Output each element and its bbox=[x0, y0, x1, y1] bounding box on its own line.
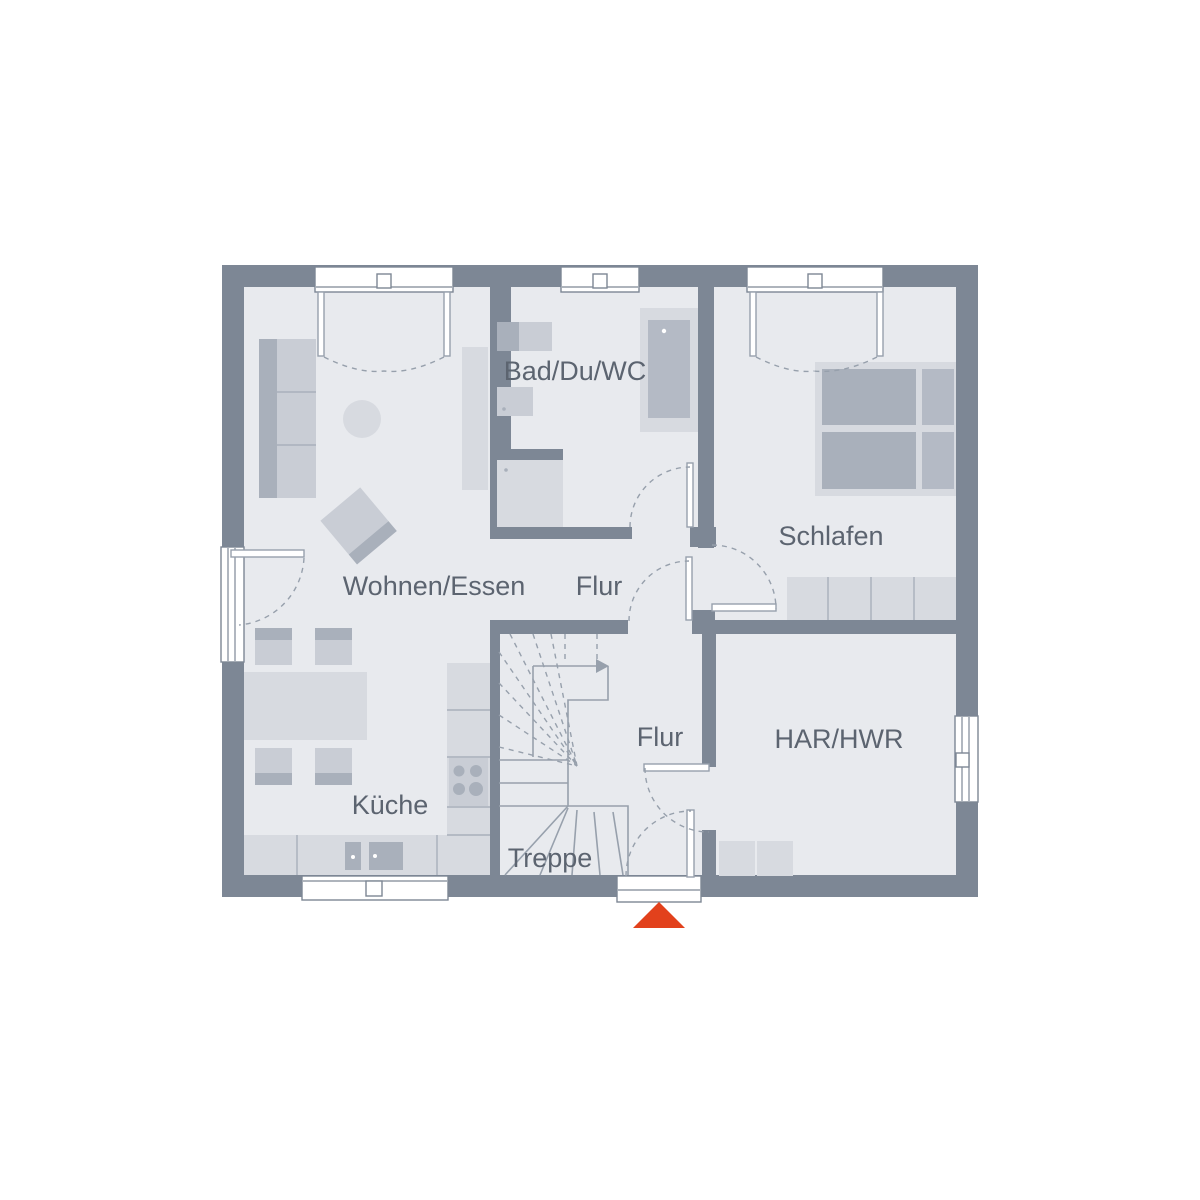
chair-backrest bbox=[315, 773, 352, 785]
bath-door-leaf bbox=[687, 463, 693, 527]
window-post bbox=[377, 274, 391, 288]
floor-plan: Wohnen/Essen Flur Bad/Du/WC Schlafen Küc… bbox=[0, 0, 1200, 1200]
wall-flur-door-stub bbox=[692, 610, 715, 634]
dryer bbox=[757, 841, 793, 876]
coffee-table bbox=[343, 400, 381, 438]
room-label-kueche: Küche bbox=[352, 790, 429, 820]
entrance-door-sill bbox=[617, 876, 701, 902]
burner-icon bbox=[469, 782, 483, 796]
room-label-har: HAR/HWR bbox=[775, 724, 904, 754]
chair-backrest bbox=[255, 628, 292, 640]
entrance-door-leaf bbox=[687, 810, 694, 877]
room-label-bad: Bad/Du/WC bbox=[504, 356, 647, 386]
bedroom-door-leaf bbox=[712, 604, 776, 611]
washer bbox=[719, 841, 755, 876]
wall-treppe-left bbox=[490, 632, 500, 875]
wall-har-left-lower bbox=[702, 830, 716, 875]
window-post bbox=[366, 881, 382, 896]
utility-door-leaf bbox=[644, 764, 709, 771]
appliance-knob-icon bbox=[373, 854, 377, 858]
room-label-schlafen: Schlafen bbox=[778, 521, 883, 551]
door-leaf-bedroom-right bbox=[877, 292, 883, 356]
door-leaf-bedroom-left bbox=[750, 292, 756, 356]
window-post bbox=[593, 274, 607, 288]
window-post bbox=[956, 753, 969, 767]
sofa-backrest bbox=[259, 339, 277, 498]
burner-icon bbox=[454, 766, 465, 777]
appliance-knob-icon bbox=[351, 855, 355, 859]
dining-table bbox=[244, 672, 367, 740]
sideboard bbox=[462, 347, 488, 490]
dining-chair bbox=[255, 640, 292, 665]
entrance-marker-icon bbox=[633, 902, 685, 928]
room-label-flur-oben: Flur bbox=[576, 571, 623, 601]
room-label-flur-unten: Flur bbox=[637, 722, 684, 752]
wall-har-left-upper bbox=[702, 634, 716, 767]
wall-schlafen-left bbox=[698, 287, 714, 548]
door-leaf-terrace bbox=[231, 550, 304, 557]
nightstand bbox=[922, 369, 954, 425]
nightstand bbox=[922, 432, 954, 489]
wall-treppe-top bbox=[490, 620, 628, 634]
cooktop bbox=[449, 758, 488, 806]
room-label-treppe: Treppe bbox=[508, 843, 593, 873]
bathtub-basin bbox=[648, 320, 690, 418]
dining-chair bbox=[315, 640, 352, 665]
door-leaf-living-right bbox=[444, 292, 450, 356]
burner-icon bbox=[470, 765, 482, 777]
dining-chair bbox=[315, 748, 352, 773]
burner-icon bbox=[453, 783, 465, 795]
window-post bbox=[808, 274, 822, 288]
wall-schlafen-har bbox=[700, 620, 956, 634]
dining-chair bbox=[255, 748, 292, 773]
door-leaf-living-left bbox=[318, 292, 324, 356]
mattress bbox=[822, 369, 916, 425]
shower-drain-icon bbox=[504, 468, 508, 472]
mattress bbox=[822, 432, 916, 489]
toilet bbox=[497, 387, 533, 416]
chair-backrest bbox=[315, 628, 352, 640]
hall-door-leaf bbox=[686, 557, 692, 620]
window-terrace-left bbox=[221, 547, 244, 662]
washbasin bbox=[497, 322, 519, 351]
room-label-wohnen: Wohnen/Essen bbox=[343, 571, 526, 601]
wall-bad-bottom bbox=[490, 527, 632, 539]
bathtub-drain-icon bbox=[662, 329, 666, 333]
wall-shower-stub bbox=[490, 449, 563, 461]
toilet-flush-icon bbox=[502, 407, 506, 411]
chair-backrest bbox=[255, 773, 292, 785]
sofa-seat bbox=[277, 339, 316, 498]
